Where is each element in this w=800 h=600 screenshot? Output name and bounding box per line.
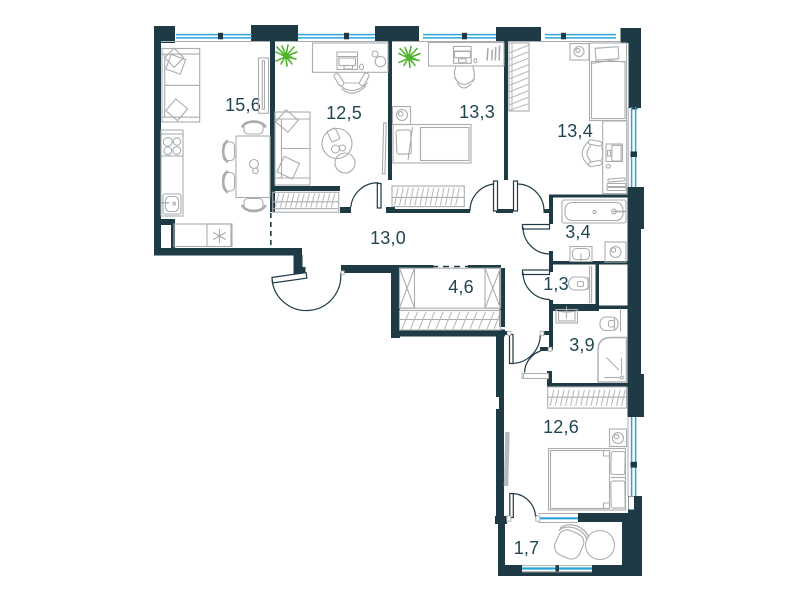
svg-text:13,4: 13,4: [557, 121, 593, 141]
svg-text:13,3: 13,3: [459, 102, 495, 122]
svg-text:1,3: 1,3: [543, 274, 569, 294]
svg-text:4,6: 4,6: [448, 277, 474, 297]
svg-text:3,9: 3,9: [569, 335, 595, 355]
svg-text:13,0: 13,0: [370, 228, 406, 248]
svg-text:1,7: 1,7: [514, 538, 540, 558]
svg-text:3,4: 3,4: [565, 222, 591, 242]
svg-text:12,6: 12,6: [543, 417, 579, 437]
svg-text:12,5: 12,5: [326, 103, 362, 123]
svg-text:15,6: 15,6: [225, 95, 261, 115]
